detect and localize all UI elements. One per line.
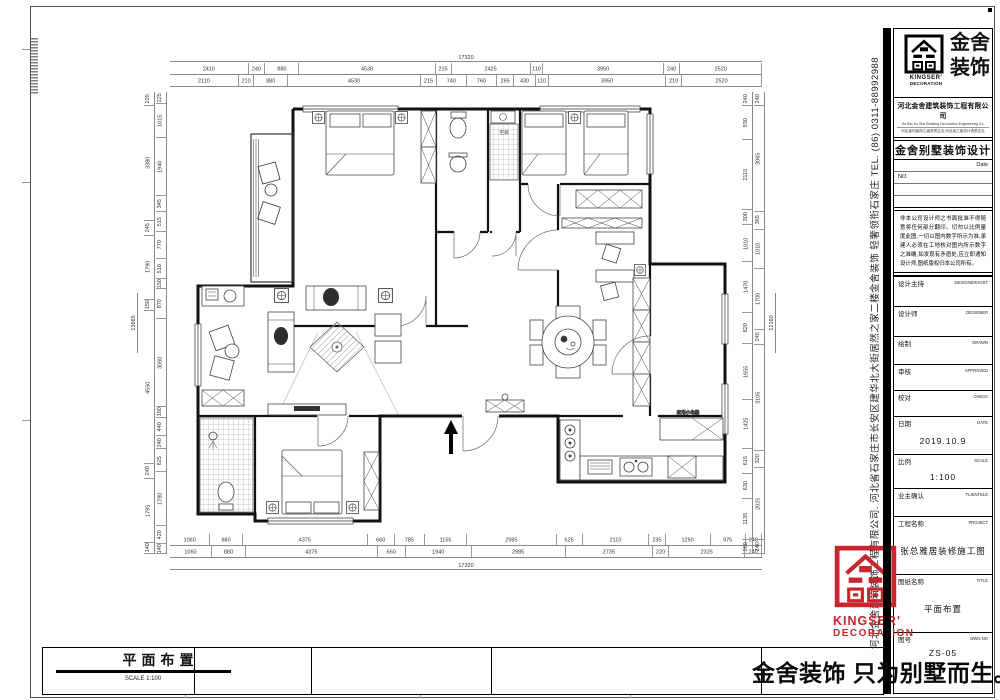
dim-segment: 4550 (144, 311, 154, 464)
binding-bar (883, 28, 891, 694)
x-cabinet (668, 456, 696, 478)
armchair (375, 314, 401, 336)
door-arc (454, 232, 480, 258)
entry-arrow-icon (444, 420, 458, 454)
door-arc (318, 416, 348, 446)
dim-segment: 245 (144, 221, 154, 235)
company-qualification: 河北省内装饰乙级资质企业,河北省乙级设计资质企业 (897, 129, 989, 134)
company-block: 河北金舍建筑装饰工程有限公司 He Bei Jin She Building D… (894, 97, 992, 137)
dim-segment: 150 (156, 279, 166, 289)
toilet (450, 118, 466, 138)
logo-cn-text: 金舍 装饰 (948, 31, 992, 81)
floor-plan: 空调 (168, 84, 768, 564)
nightstand (347, 502, 359, 514)
register-tick (22, 182, 30, 183)
footer-underline (56, 670, 231, 673)
entry (444, 416, 498, 454)
rug (310, 322, 364, 372)
dim-segment: 440 (156, 418, 166, 436)
company-name-en: He Bei Jin She Building Decoration Engin… (897, 122, 989, 128)
dim-segment: 1940 (156, 138, 166, 196)
drawing-sheet: 17320 2410240880453021524251103950240252… (0, 0, 1000, 700)
titleblock-row-client: 业主确认TLIENTELE (894, 488, 992, 516)
hall-closet (612, 264, 650, 406)
balcony-table (265, 184, 277, 196)
dim-segment: 880 (265, 63, 299, 74)
appliance-label: 家用小电器 (677, 409, 700, 416)
corner-mark (988, 8, 992, 12)
footer-divider (491, 648, 492, 694)
bookshelf (562, 218, 642, 228)
toilet (218, 482, 234, 502)
dining-chair (530, 320, 543, 340)
balcony-chair (258, 202, 281, 225)
dim-segment: 2520 (680, 63, 762, 74)
dim-segment: 625 (156, 449, 166, 472)
dim-segment: 870 (156, 289, 166, 319)
empty-row (894, 183, 992, 195)
dining-chair (593, 345, 606, 365)
brand-product: 金舍别墅装饰设计 (894, 141, 992, 159)
nightstand (313, 112, 325, 124)
titleblock-row-check: 校对CHECK (894, 390, 992, 416)
titleblock-row-drawn: 绘制DRAWN (894, 336, 992, 364)
dining-table (542, 316, 594, 368)
balcony-chair (258, 162, 280, 184)
dim-segment: 225 (156, 92, 166, 104)
dim-segment: 3380 (144, 106, 154, 221)
dim-segment: 420 (156, 526, 166, 544)
dim-overall-top: 17320 (170, 50, 762, 62)
register-tick (22, 420, 30, 421)
dim-segment: 770 (156, 232, 166, 259)
logo-wordmark: KINGSER' DECORATION (902, 75, 950, 86)
dim-overall-left: 13665 (126, 293, 138, 353)
low-cabinet (202, 390, 244, 406)
empty-row (894, 195, 992, 207)
dim-segment: 2425 (452, 63, 531, 74)
dim-segment: 140 (156, 544, 166, 554)
dining-chair (593, 320, 606, 340)
door-arc (518, 230, 558, 270)
ac-label: 空调 (500, 129, 509, 136)
entry-sideboard (486, 394, 524, 412)
no-label-row: NO. (894, 171, 992, 183)
dim-segment: 150 (144, 300, 154, 311)
dim-chain-left-2: 2251015194034551577051015087030601804402… (156, 92, 167, 554)
titleblock-row-designer: 设计师DESIGNER (894, 306, 992, 336)
study (518, 190, 642, 300)
nightstand (396, 112, 408, 124)
dim-segment: 1015 (156, 104, 166, 137)
dim-segment: 4530 (299, 63, 435, 74)
dim-segment: 240 (664, 63, 681, 74)
footer-divider (311, 648, 312, 694)
dim-chain-top-1: 24102408804530215242511039502402520 (170, 63, 762, 75)
titleblock-row-approved: 审核APPROVED (894, 364, 992, 390)
nightstand (569, 112, 581, 124)
side-table (379, 289, 393, 303)
sink (450, 156, 466, 172)
dim-segment: 3950 (543, 63, 663, 74)
dim-segment: 1795 (144, 479, 154, 543)
dim-segment: 225 (144, 92, 154, 106)
dim-segment: 215 (436, 63, 452, 74)
door-arc (528, 184, 560, 216)
dim-segment: 3060 (156, 319, 166, 407)
leisure-corner (209, 325, 239, 380)
dim-segment: 510 (156, 259, 166, 279)
sofa-single (306, 286, 366, 310)
appliance-counter (660, 418, 723, 440)
titleblock-row-scale: 比例SCALE 1:100 (894, 454, 992, 488)
kitchen: 家用小电器 (560, 409, 723, 480)
dim-segment: 345 (156, 196, 166, 212)
titleblock-row-design-host: 设计主持DESIGNERHOST (894, 276, 992, 306)
sofa-long (268, 312, 294, 372)
shower-room: 空调 (490, 111, 518, 256)
dim-segment: 1780 (156, 472, 166, 526)
desk (596, 232, 634, 244)
dim-segment: 140 (144, 543, 154, 554)
desk-chair (601, 282, 619, 300)
footer-scale: SCALE 1:100 (83, 676, 203, 682)
dim-segment: 240 (144, 464, 154, 478)
nightstand (267, 502, 279, 514)
door-arc (463, 416, 498, 451)
master-bathroom (449, 112, 480, 258)
dim-segment: 1790 (144, 236, 154, 300)
sw-bedroom (267, 416, 380, 514)
drain-grate (588, 460, 612, 474)
sw-bathroom (200, 418, 253, 512)
date-label-row: Date (894, 159, 992, 171)
titleblock-row-title: 图纸名称TITLE 平面布置 (894, 574, 992, 632)
edge-micro-text (31, 38, 38, 95)
company-name: 河北金舍建筑装饰工程有限公司 (897, 100, 989, 120)
washing-machine (491, 111, 515, 123)
master-balcony (251, 134, 293, 282)
dim-segment: 180 (156, 407, 166, 418)
register-tick (22, 49, 30, 50)
living-room (202, 286, 401, 415)
side-table (275, 289, 289, 303)
dim-chain-left-1: 2253380245179015045502401795140 (144, 92, 155, 554)
dim-segment: 110 (531, 63, 544, 74)
desk-chair (602, 244, 621, 263)
titleblock-row-project: 工程名称PROJECT 张总雅居装修施工图 (894, 516, 992, 574)
title-block: KINGSER' DECORATION 金舍 装饰 河北金舍建筑装饰工程有限公司… (893, 28, 993, 694)
armchair (375, 341, 401, 363)
footer-title: 平面布置 (83, 650, 238, 670)
tv-cabinet (268, 404, 346, 415)
door-arc (492, 232, 516, 256)
wardrobe-strip (576, 190, 642, 208)
logo-section: KINGSER' DECORATION 金舍 装饰 (894, 29, 992, 97)
brand-slogan: 金舍装饰 只为别墅而生。 (752, 654, 1000, 688)
kitchen-sink (620, 458, 652, 476)
dim-segment: 2410 (170, 63, 249, 74)
sw-wardrobe (364, 452, 379, 510)
dining-chair (530, 345, 543, 365)
desk (596, 270, 634, 282)
master-wardrobe (421, 111, 436, 183)
kingser-logo-icon (904, 34, 944, 74)
disclaimer-text: 非本公司设计师之书面批准不得随意将任何部分翻印。切勿以比例量度此图,一切以图内数… (894, 211, 992, 272)
dim-segment: 515 (156, 212, 166, 232)
dining-set (530, 306, 606, 378)
bar-counter (202, 286, 244, 306)
dim-segment: 240 (156, 436, 166, 449)
titleblock-row-date: 日期DATE 2019.10.9 (894, 416, 992, 454)
dim-segment: 240 (249, 63, 266, 74)
